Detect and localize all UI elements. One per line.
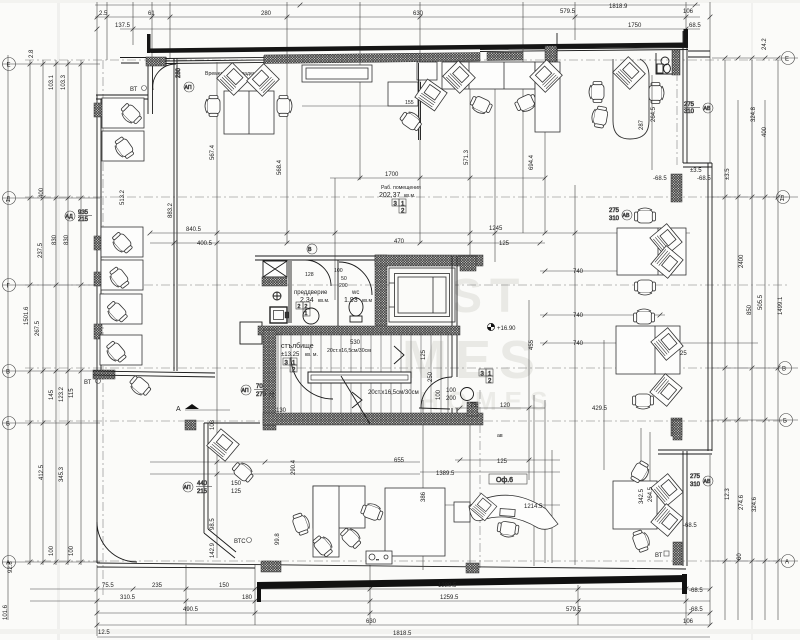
svg-text:400: 400 — [762, 126, 768, 137]
svg-text:694.4: 694.4 — [529, 154, 535, 170]
svg-text:100: 100 — [49, 545, 55, 556]
svg-text:Д: Д — [780, 196, 784, 202]
svg-text:АП: АП — [184, 485, 191, 491]
svg-text:..: .. — [376, 556, 379, 562]
svg-text:12.3: 12.3 — [725, 488, 731, 500]
svg-text:1818.5: 1818.5 — [393, 631, 412, 637]
svg-text:840.5: 840.5 — [186, 227, 202, 233]
svg-text:655: 655 — [394, 458, 405, 464]
svg-text:wc: wc — [351, 290, 359, 296]
svg-text:1750: 1750 — [628, 23, 642, 29]
svg-text:142.9: 142.9 — [210, 542, 216, 558]
svg-text:ав: ав — [497, 433, 503, 439]
svg-text:2.8: 2.8 — [29, 49, 35, 58]
svg-text:324.6: 324.6 — [752, 496, 758, 512]
svg-text:25: 25 — [680, 351, 687, 357]
svg-text:386: 386 — [421, 491, 427, 502]
svg-text:505.5: 505.5 — [758, 294, 764, 310]
svg-text:кв.м: кв.м — [362, 298, 372, 304]
svg-text:В: В — [6, 370, 10, 376]
svg-text:235: 235 — [152, 583, 163, 589]
svg-text:60: 60 — [737, 553, 743, 560]
svg-text:2400: 2400 — [739, 254, 745, 268]
svg-text:101.6: 101.6 — [3, 604, 9, 620]
svg-text:преддверие: преддверие — [294, 290, 328, 296]
svg-text:513.2: 513.2 — [120, 189, 126, 205]
svg-text:440: 440 — [197, 481, 208, 487]
svg-text:12.5: 12.5 — [98, 630, 110, 636]
svg-text:АП: АП — [185, 85, 192, 91]
svg-text:137.5: 137.5 — [115, 23, 131, 29]
svg-text:740: 740 — [573, 341, 584, 347]
svg-text:412.5: 412.5 — [39, 464, 45, 480]
svg-text:1.93: 1.93 — [344, 297, 358, 304]
svg-text:490.5: 490.5 — [183, 607, 199, 613]
svg-text:180: 180 — [242, 595, 253, 601]
svg-text:106: 106 — [683, 9, 694, 15]
svg-text:кв.м.: кв.м. — [318, 298, 329, 304]
svg-text:ВТ: ВТ — [655, 553, 663, 559]
svg-text:568.4: 568.4 — [277, 159, 283, 175]
svg-text:324.8: 324.8 — [751, 106, 757, 122]
svg-text:120: 120 — [500, 403, 511, 409]
svg-text:123.2: 123.2 — [59, 386, 65, 402]
svg-text:103.3: 103.3 — [61, 74, 67, 90]
svg-text:70: 70 — [270, 391, 276, 398]
svg-text:103: 103 — [210, 419, 216, 430]
svg-text:830: 830 — [52, 234, 58, 245]
svg-text:Б: Б — [6, 422, 10, 428]
svg-text:Д: Д — [6, 197, 10, 203]
svg-text:264.5: 264.5 — [648, 486, 654, 502]
svg-text:1245: 1245 — [489, 226, 503, 232]
svg-text:155: 155 — [405, 100, 414, 106]
svg-text:1259.5: 1259.5 — [440, 595, 459, 601]
svg-text:-68.5: -68.5 — [697, 176, 711, 182]
svg-text:1214.5: 1214.5 — [524, 504, 543, 510]
svg-text:20ст.х16,5см/30см: 20ст.х16,5см/30см — [327, 348, 371, 354]
svg-text:1700: 1700 — [385, 172, 399, 178]
svg-text:740: 740 — [573, 313, 584, 319]
svg-text:530: 530 — [350, 340, 361, 346]
svg-text:-68.5: -68.5 — [689, 607, 703, 613]
svg-text:99.8: 99.8 — [275, 533, 281, 545]
svg-text:567.4: 567.4 — [210, 144, 216, 160]
svg-text:1289.5: 1289.5 — [438, 583, 457, 589]
svg-text:935: 935 — [78, 210, 89, 216]
svg-text:342.5: 342.5 — [639, 488, 645, 504]
svg-text:2: 2 — [298, 304, 301, 310]
svg-text:579.5: 579.5 — [566, 607, 582, 613]
svg-text:125: 125 — [497, 459, 508, 465]
svg-text:630: 630 — [366, 619, 377, 625]
svg-text:98.5: 98.5 — [210, 518, 216, 530]
svg-text:280: 280 — [176, 67, 182, 78]
svg-text:Б: Б — [783, 419, 787, 425]
svg-text:61: 61 — [148, 11, 155, 17]
svg-text:1501.6: 1501.6 — [24, 306, 30, 325]
svg-text:130: 130 — [276, 408, 287, 414]
svg-text:75.5: 75.5 — [102, 583, 114, 589]
svg-text:429.5: 429.5 — [592, 406, 608, 412]
svg-text:571.3: 571.3 — [464, 149, 470, 165]
svg-text:830: 830 — [64, 234, 70, 245]
svg-text:100: 100 — [334, 268, 343, 274]
svg-text:740: 740 — [573, 269, 584, 275]
svg-text:100: 100 — [446, 388, 457, 394]
svg-text:ВТ: ВТ — [130, 87, 138, 93]
svg-text:125: 125 — [231, 489, 242, 495]
svg-text:100: 100 — [436, 389, 442, 400]
svg-text:630: 630 — [413, 11, 424, 17]
svg-text:345.3: 345.3 — [59, 466, 65, 482]
svg-text:±13.25: ±13.25 — [281, 352, 300, 358]
svg-text:Оф.6: Оф.6 — [496, 477, 513, 484]
svg-text:1389.5: 1389.5 — [436, 471, 455, 477]
svg-text:267.5: 267.5 — [35, 320, 41, 336]
svg-text:+16.90: +16.90 — [497, 326, 516, 332]
svg-text:±3.5: ±3.5 — [725, 168, 731, 180]
svg-text:24.2: 24.2 — [762, 38, 768, 50]
svg-text:850: 850 — [747, 304, 753, 315]
svg-text:100: 100 — [69, 545, 75, 556]
svg-text:1: 1 — [305, 311, 308, 317]
svg-text:АД: АД — [66, 214, 74, 220]
svg-text:106: 106 — [683, 619, 694, 625]
svg-text:ВТ: ВТ — [84, 380, 92, 386]
svg-text:2.5: 2.5 — [99, 11, 108, 17]
svg-text:274.6: 274.6 — [739, 494, 745, 510]
svg-text:400.5: 400.5 — [197, 241, 213, 247]
svg-text:287: 287 — [639, 119, 645, 130]
svg-text:-68.5: -68.5 — [683, 523, 697, 529]
svg-text:70: 70 — [256, 384, 263, 390]
svg-text:202,37: 202,37 — [379, 192, 401, 199]
svg-text:883.2: 883.2 — [168, 202, 174, 218]
svg-text:310.5: 310.5 — [120, 595, 136, 601]
svg-text:103.1: 103.1 — [49, 74, 55, 90]
svg-text:150: 150 — [219, 583, 230, 589]
svg-text:250: 250 — [428, 371, 434, 382]
svg-text:579.5: 579.5 — [560, 9, 576, 15]
svg-text:200: 200 — [339, 283, 348, 289]
svg-text:275: 275 — [609, 208, 620, 214]
svg-text:кв. м.: кв. м. — [305, 352, 318, 358]
svg-text:275: 275 — [690, 474, 701, 480]
svg-text:280: 280 — [261, 11, 272, 17]
svg-text:АП: АП — [242, 388, 249, 394]
svg-text:А: А — [176, 406, 181, 413]
svg-text:125: 125 — [421, 349, 427, 360]
svg-text:275: 275 — [684, 102, 695, 108]
svg-text:310: 310 — [690, 482, 701, 488]
svg-text:200: 200 — [446, 396, 457, 402]
svg-text:92.8: 92.8 — [8, 561, 14, 573]
svg-text:Раб. помещения: Раб. помещения — [381, 185, 421, 191]
svg-text:-68.5: -68.5 — [653, 176, 667, 182]
svg-text:Е: Е — [785, 57, 789, 63]
svg-text:215: 215 — [78, 217, 89, 223]
svg-text:АВ: АВ — [704, 479, 711, 485]
svg-text:115: 115 — [69, 388, 75, 398]
svg-text:кв.м.: кв.м. — [404, 193, 415, 199]
svg-text:68.5: 68.5 — [689, 23, 701, 29]
svg-text:215: 215 — [197, 489, 208, 495]
svg-text:стълбище: стълбище — [281, 342, 314, 350]
svg-text:1818.9: 1818.9 — [609, 4, 628, 10]
svg-text:128: 128 — [305, 272, 314, 278]
svg-text:470: 470 — [394, 239, 405, 245]
svg-text:АВ: АВ — [623, 213, 630, 219]
svg-text:237.5: 237.5 — [38, 242, 44, 258]
svg-text:20ст.х16,5см/30см: 20ст.х16,5см/30см — [368, 390, 419, 396]
svg-text:290.4: 290.4 — [291, 459, 297, 475]
svg-text:145: 145 — [49, 389, 55, 400]
svg-text:-68.5: -68.5 — [689, 588, 703, 594]
svg-text:50: 50 — [341, 276, 347, 282]
svg-text:400: 400 — [39, 187, 45, 198]
svg-text:1499.1: 1499.1 — [778, 296, 784, 315]
svg-text:310: 310 — [684, 109, 695, 115]
svg-text:АВ: АВ — [704, 106, 711, 112]
svg-text:В: В — [782, 367, 786, 373]
svg-text:310: 310 — [609, 216, 620, 222]
svg-text:150: 150 — [231, 481, 242, 487]
svg-text:2.34: 2.34 — [300, 297, 314, 304]
svg-text:455: 455 — [529, 339, 535, 350]
svg-text:±3.5: ±3.5 — [690, 168, 702, 174]
svg-text:270: 270 — [256, 392, 267, 398]
svg-text:125: 125 — [499, 241, 510, 247]
svg-text:75: 75 — [470, 403, 477, 409]
svg-text:В: В — [308, 247, 312, 253]
svg-text:Е: Е — [7, 63, 11, 69]
svg-text:А: А — [785, 560, 789, 566]
svg-text:ВТС: ВТС — [234, 539, 246, 545]
